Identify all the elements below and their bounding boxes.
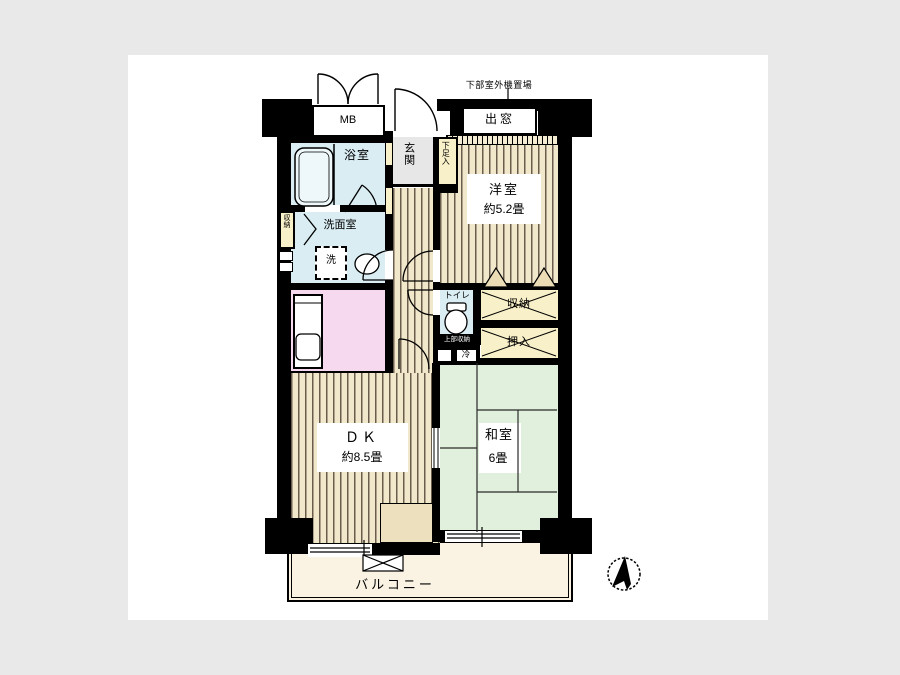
western-room-size: 約5.2畳 [484,203,525,217]
meter-box-label: MB [340,114,357,127]
wall-bottom-west [308,543,440,555]
dk-size: 約8.5畳 [342,451,383,465]
toilet-label: トイレ [444,291,470,301]
wall-bottom-east [433,530,572,542]
shoe-cabinet-label: 下足入 [441,141,450,185]
entrance-notch-b [386,188,392,214]
washer-label: 洗 [326,255,336,267]
wall-oshiire-under [473,358,572,365]
toilet-door-gap [433,290,440,315]
pillar-bottom-left [265,518,313,554]
bay-window-label: 出窓 [485,113,515,127]
hallway-floor [393,188,433,373]
dk-plain-patch [380,503,433,543]
bathroom-label: 浴室 [344,149,370,163]
bay-window-sill-hatch [446,135,558,145]
meter-slot-lower [279,262,293,272]
oshiire-label: 押入 [507,336,531,349]
bathroom [291,143,385,205]
closet-storage-label: 収納 [507,298,531,311]
entrance-door-swing [395,89,437,131]
kitchen-counter [293,294,323,369]
wall-wash-kitchen [291,283,393,290]
western-door-gap [433,250,440,282]
dk-name: ＤＫ [345,429,379,445]
pillar-top-right [538,99,592,137]
entrance-label: 玄関 [402,142,415,180]
toilet-upper-storage-label: 上部収納 [444,336,470,343]
balcony-label: バルコニー [355,578,435,593]
screenshot-root: { "colors": { "page_bg": "#e9e9e9", "pan… [0,0,900,675]
wall-top-right-lip [450,111,462,137]
wall-dk-washitsu [432,363,440,532]
mb-door-swings [318,74,378,104]
japanese-room-size: 6畳 [489,452,508,466]
floorplan-panel: 下部室外機置場 MB 出窓 浴室 玄関 下足入 収納 洋室 約5.2畳 洗面室 … [128,55,768,620]
wall-left [277,137,291,518]
outdoor-unit-label: 下部室外機置場 [466,80,533,90]
counter-blank-box [437,349,452,362]
compass-icon [608,556,640,590]
wall-western-bottom [440,283,572,290]
wall-hall-left [385,137,393,373]
meter-slot-upper [279,251,293,261]
wall-hall-right-b [433,282,440,290]
line-entrance-step [393,184,433,187]
wall-shoe-under [437,186,458,193]
japanese-room-name: 和室 [485,428,513,443]
refrigerator-label: 冷 [462,350,471,360]
western-room-name: 洋室 [489,183,519,198]
wall-closet-mid [473,320,572,328]
washroom-label: 洗面室 [324,219,357,232]
line-kitchen-dk [291,371,390,373]
hall-storage-label: 収納 [282,214,290,246]
entrance-notch-a [386,143,392,165]
